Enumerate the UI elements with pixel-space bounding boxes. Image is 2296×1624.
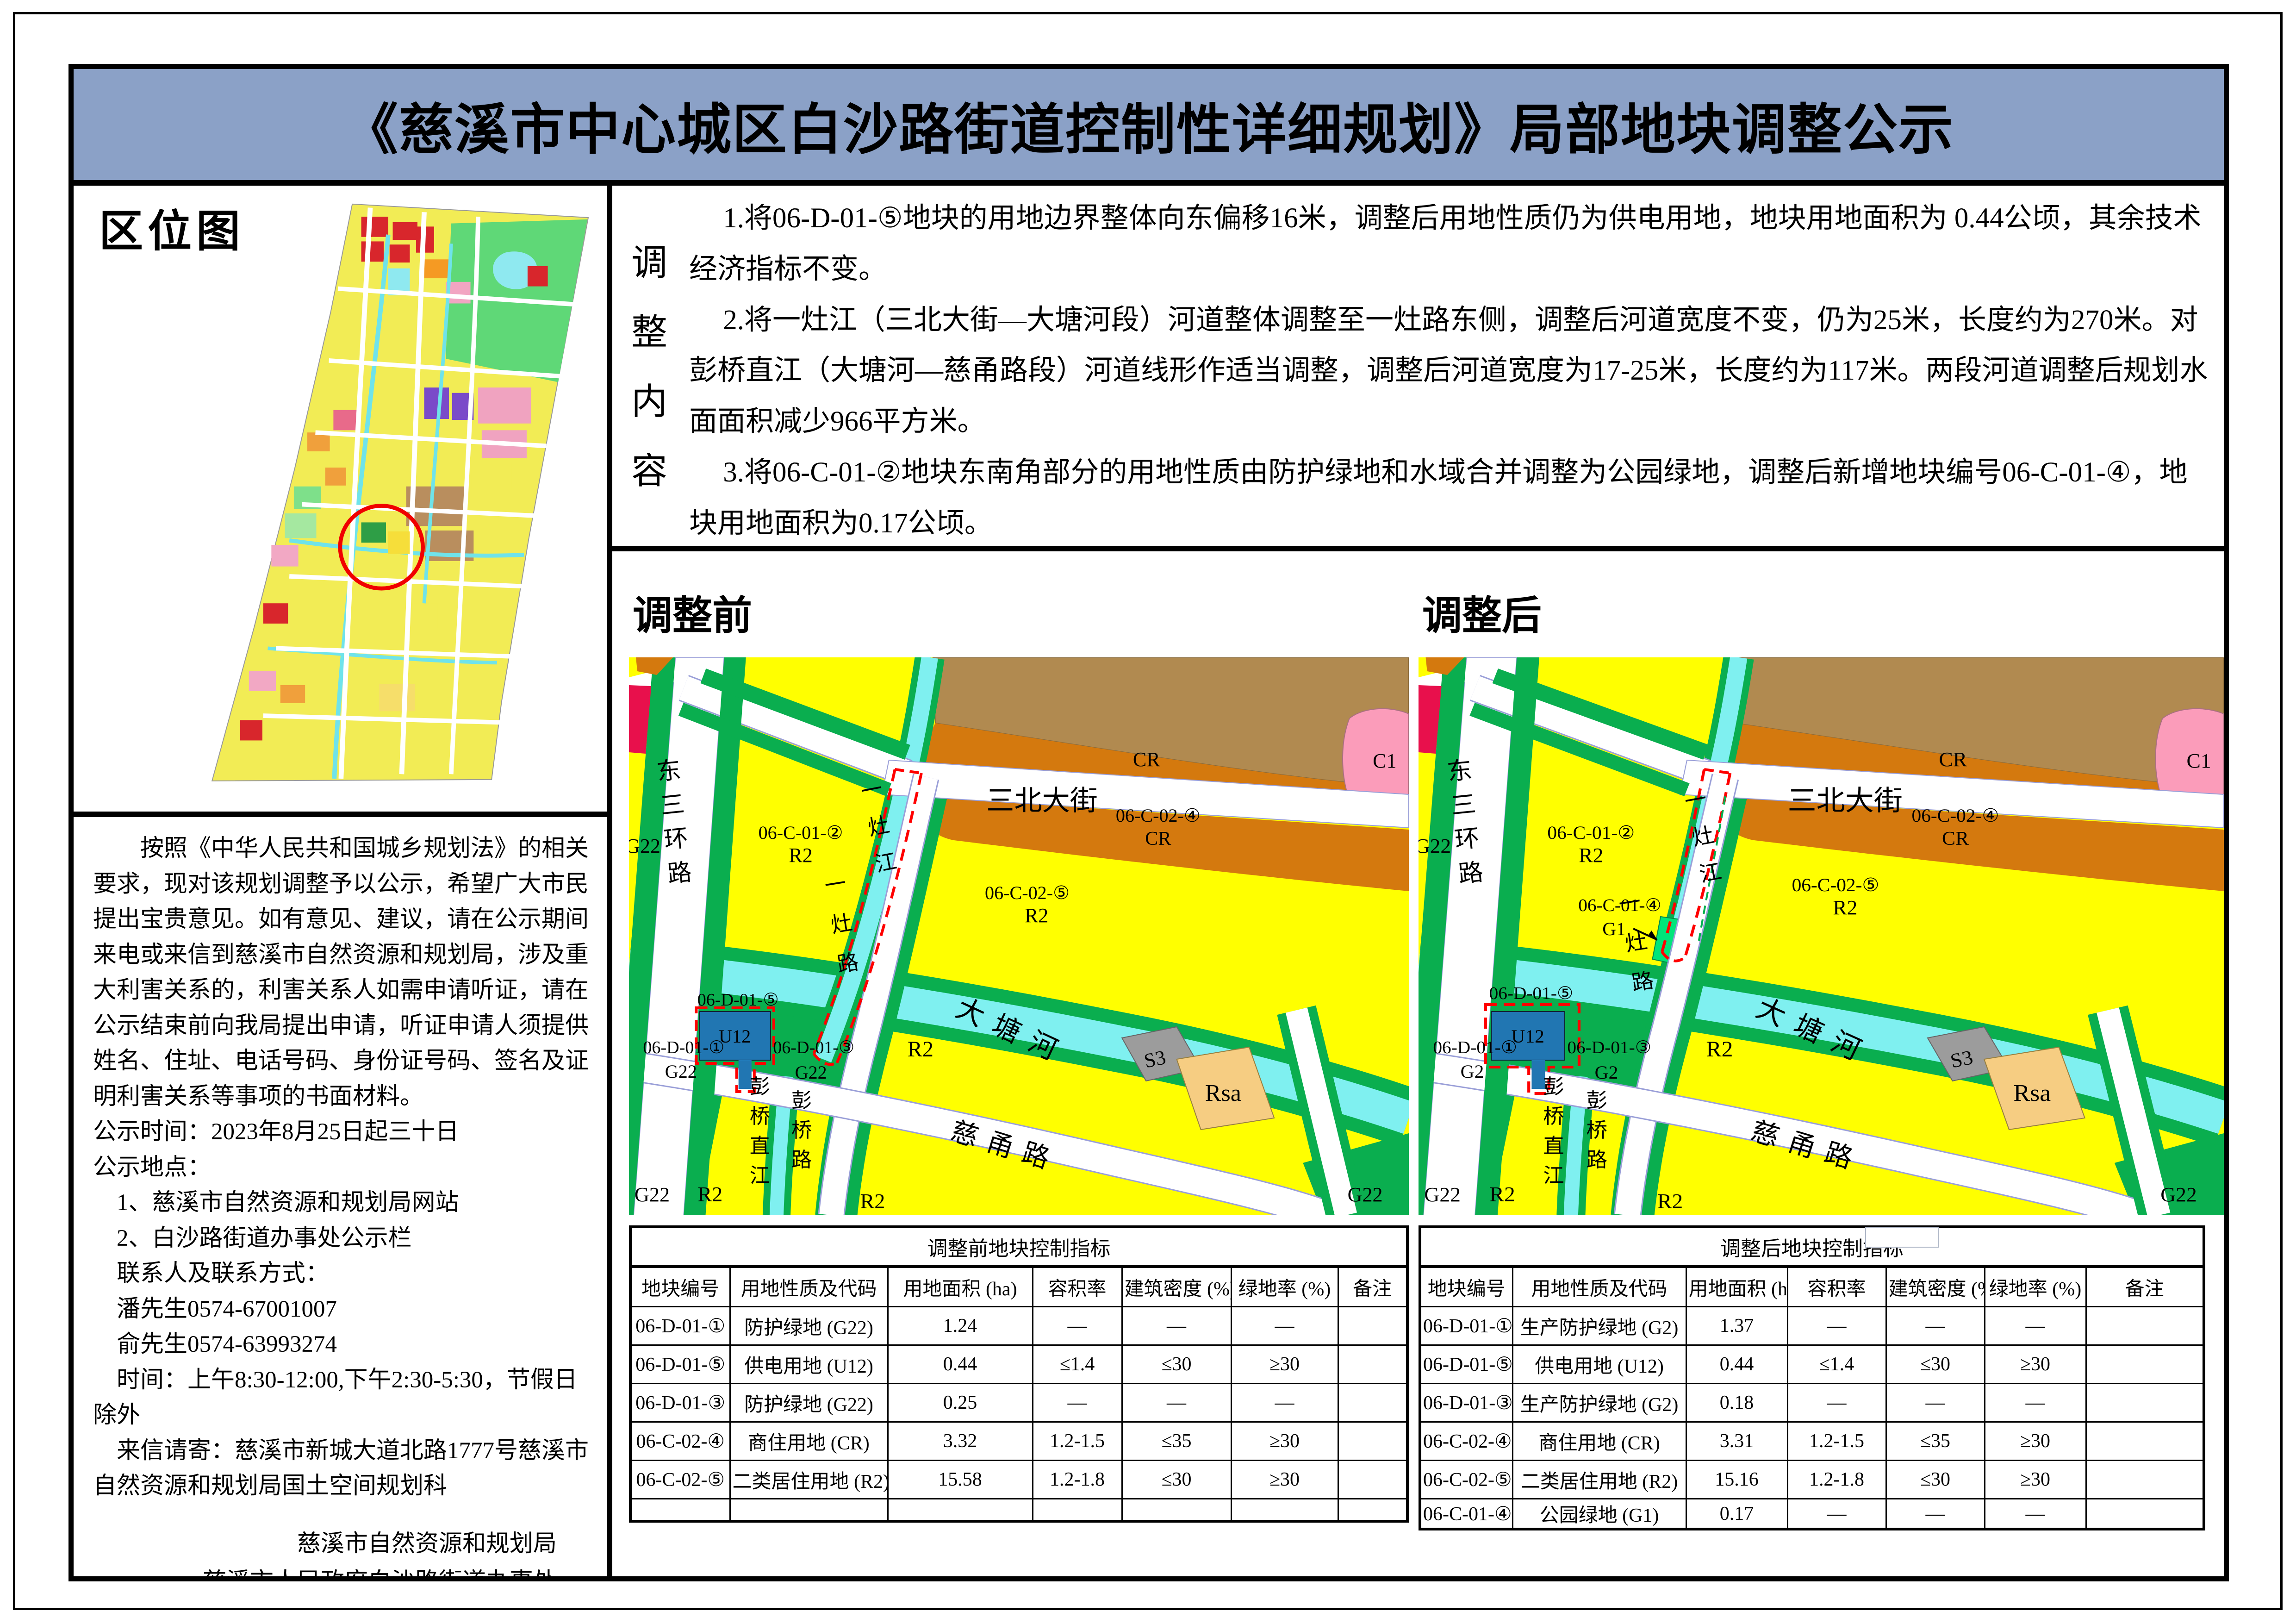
- zone-label-r2-bc: R2: [1657, 1190, 1683, 1213]
- table-cell: 二类居住用地 (R2): [730, 1461, 888, 1499]
- planning-notice-page: { "page_title": "《慈溪市中心城区白沙路街道控制性详细规划》局部…: [0, 0, 2296, 1624]
- street-label-pengqiaolu: 彭桥路: [791, 1089, 812, 1171]
- zone-label-c1: C1: [2187, 750, 2211, 772]
- table-cell: [1338, 1307, 1407, 1345]
- table-cell: 公园绿地 (G1): [1512, 1499, 1686, 1530]
- table-cell: [888, 1499, 1033, 1521]
- col-header: 用地性质及代码: [730, 1267, 888, 1307]
- zone-label-g22-west: G22: [1419, 835, 1451, 857]
- parcel-label-06d011: 06-D-01-①: [643, 1038, 724, 1057]
- adjustment-label-char: 容: [631, 453, 667, 489]
- zone-label-r2-c012: R2: [789, 844, 812, 867]
- zone-label-r2-bc: R2: [860, 1189, 885, 1213]
- after-map-title: 调整后: [1422, 583, 2224, 641]
- table-cell: [2086, 1384, 2204, 1422]
- parcel-label-06d015: 06-D-01-⑤: [697, 990, 779, 1010]
- notice-line: 潘先生0574-67001007: [93, 1292, 589, 1327]
- parcel-label-06d011: 06-D-01-①: [1433, 1038, 1517, 1057]
- zone-label-rsa: Rsa: [1205, 1080, 1241, 1106]
- table-cell: 3.32: [888, 1422, 1033, 1461]
- zone-label-g22-br: G22: [2160, 1183, 2196, 1206]
- table-cell: —: [1122, 1307, 1231, 1345]
- table-cell: —: [1787, 1307, 1886, 1345]
- location-map-panel: 区位图: [74, 186, 607, 817]
- table-cell: [1338, 1499, 1407, 1521]
- table-row: [630, 1499, 1407, 1521]
- notice-sheet: 《慈溪市中心城区白沙路街道控制性详细规划》局部地块调整公示 区位图: [68, 64, 2229, 1581]
- zone-label-cr-north: CR: [1133, 748, 1160, 771]
- zone-label-r2-c025: R2: [1025, 904, 1048, 927]
- notice-line: 1、慈溪市自然资源和规划局网站: [93, 1185, 589, 1221]
- table-cell: ≥30: [1985, 1461, 2086, 1499]
- zone-label-r2-bl: R2: [1489, 1183, 1515, 1206]
- right-column: 调整内容 1.将06-D-01-⑤地块的用地边界整体向东偏移16米，调整后用地性…: [612, 186, 2224, 1576]
- content-area: 区位图: [74, 186, 2224, 1576]
- col-header: 建筑密度 (%): [1122, 1267, 1231, 1307]
- table-cell: —: [1886, 1307, 1985, 1345]
- notice-line: 公示时间：2023年8月25日起三十日: [93, 1114, 589, 1150]
- zone-label-g22-west: G22: [629, 835, 660, 857]
- table-row: 06-C-02-⑤二类居住用地 (R2)15.581.2-1.8≤30≥30: [630, 1461, 1407, 1499]
- table-row: 06-D-01-③防护绿地 (G22)0.25———: [630, 1384, 1407, 1422]
- table-cell: 1.2-1.5: [1033, 1422, 1122, 1461]
- table-cell: —: [1985, 1384, 2086, 1422]
- maps-area: 调整前: [612, 551, 2224, 1576]
- table-cell: [2086, 1345, 2204, 1384]
- table-cell: [2086, 1422, 2204, 1461]
- notice-line: 来信请寄：慈溪市新城大道北路1777号慈溪市自然资源和规划局国土空间规划科: [93, 1433, 589, 1504]
- table-cell: ≤35: [1886, 1422, 1985, 1461]
- table-cell: 0.18: [1686, 1384, 1787, 1422]
- table-cell: ≥30: [1985, 1345, 2086, 1384]
- table-row: 06-D-01-③生产防护绿地 (G2)0.18———: [1420, 1384, 2204, 1422]
- zone-label-cr-south: CR: [1942, 828, 1969, 849]
- table-row: 06-D-01-①防护绿地 (G22)1.24———: [630, 1307, 1407, 1345]
- table-cell: ≥30: [1231, 1345, 1338, 1384]
- title-bar: 《慈溪市中心城区白沙路街道控制性详细规划》局部地块调整公示: [74, 69, 2224, 186]
- selection-artifact: [1865, 1227, 1939, 1248]
- table-cell: 供电用地 (U12): [730, 1345, 888, 1384]
- table-row: 06-D-01-⑤供电用地 (U12)0.44≤1.4≤30≥30: [1420, 1345, 2204, 1384]
- adjustment-label-char: 整: [631, 314, 667, 350]
- table-cell: 06-C-02-⑤: [630, 1461, 730, 1499]
- table-cell: ≤35: [1122, 1422, 1231, 1461]
- col-header: 用地性质及代码: [1512, 1267, 1686, 1307]
- zone-label-g22-bl: G22: [1424, 1183, 1460, 1206]
- before-map-column: 调整前: [629, 551, 1409, 1523]
- table-cell: 防护绿地 (G22): [730, 1307, 888, 1345]
- parcel-label-06d013: 06-D-01-③: [1567, 1038, 1651, 1057]
- table-cell: —: [1985, 1307, 2086, 1345]
- table-cell: [1033, 1499, 1122, 1521]
- zone-label-g22-br: G22: [1348, 1183, 1383, 1206]
- parcel-label-06c024: 06-C-02-④: [1116, 805, 1201, 826]
- left-column: 区位图: [74, 186, 612, 1576]
- street-label-pengqiaolu: 彭桥路: [1587, 1089, 1608, 1171]
- after-table-wrap: 调整后地块控制指标 地块编号 用地性质及代码 用地面积 (ha) 容积率 建筑密…: [1419, 1225, 2224, 1530]
- table-cell: [1338, 1345, 1407, 1384]
- table-cell: ≥30: [1231, 1461, 1338, 1499]
- table-cell: [1122, 1499, 1231, 1521]
- before-map-title: 调整前: [633, 583, 1409, 641]
- col-header: 地块编号: [1420, 1267, 1512, 1307]
- zone-label-r2-mid: R2: [1706, 1037, 1733, 1062]
- table-cell: 1.2-1.8: [1033, 1461, 1122, 1499]
- table-cell: 06-D-01-①: [1420, 1307, 1512, 1345]
- col-header: 用地面积 (ha): [888, 1267, 1033, 1307]
- table-cell: 1.2-1.8: [1787, 1461, 1886, 1499]
- table-cell: 生产防护绿地 (G2): [1512, 1384, 1686, 1422]
- table-cell: 0.17: [1686, 1499, 1787, 1530]
- table-cell: [1338, 1461, 1407, 1499]
- parcel-label-06c025: 06-C-02-⑤: [985, 882, 1070, 903]
- notice-line: 联系人及联系方式：: [93, 1256, 589, 1292]
- table-cell: [2086, 1499, 2204, 1530]
- parcel-label-06d013: 06-D-01-③: [773, 1038, 854, 1057]
- table-cell: —: [1231, 1307, 1338, 1345]
- after-table-title: 调整后地块控制指标: [1420, 1227, 2204, 1267]
- before-table-wrap: 调整前地块控制指标 地块编号 用地性质及代码 用地面积 (ha) 容积率 建筑密…: [629, 1225, 1409, 1523]
- zone-label-d3-code: G22: [795, 1062, 827, 1083]
- table-cell: 06-D-01-⑤: [630, 1345, 730, 1384]
- after-map-column: 调整后: [1419, 551, 2224, 1530]
- table-cell: [2086, 1461, 2204, 1499]
- table-row: 06-C-02-④商住用地 (CR)3.321.2-1.5≤35≥30: [630, 1422, 1407, 1461]
- zone-label-c1: C1: [1373, 750, 1396, 772]
- street-label-sanbei: 三北大街: [1788, 786, 1903, 817]
- table-cell: ≥30: [1231, 1422, 1338, 1461]
- zone-label-d1-code: G2: [1461, 1062, 1484, 1082]
- table-cell: 0.44: [1686, 1345, 1787, 1384]
- zone-label-d3-code: G2: [1595, 1062, 1618, 1083]
- table-cell: 生产防护绿地 (G2): [1512, 1307, 1686, 1345]
- table-cell: 供电用地 (U12): [1512, 1345, 1686, 1384]
- table-cell: —: [1122, 1384, 1231, 1422]
- parcel-label-06c025: 06-C-02-⑤: [1792, 875, 1879, 895]
- table-cell: 06-C-01-④: [1420, 1499, 1512, 1530]
- parcel-label-06c012: 06-C-01-②: [759, 822, 843, 843]
- table-cell: 06-C-02-④: [1420, 1422, 1512, 1461]
- table-cell: 商住用地 (CR): [1512, 1422, 1686, 1461]
- table-cell: 06-D-01-⑤: [1420, 1345, 1512, 1384]
- table-cell: —: [1886, 1499, 1985, 1530]
- table-cell: [630, 1499, 730, 1521]
- parcel-label-06c024: 06-C-02-④: [1911, 806, 1999, 826]
- table-cell: [2086, 1307, 2204, 1345]
- table-cell: 1.37: [1686, 1307, 1787, 1345]
- table-row: 06-C-02-④商住用地 (CR)3.311.2-1.5≤35≥30: [1420, 1422, 2204, 1461]
- zone-label-r2-mid: R2: [908, 1037, 933, 1062]
- parcel-label-06c014: 06-C-01-④: [1578, 896, 1661, 915]
- table-cell: 15.16: [1686, 1461, 1787, 1499]
- zone-label-g1: G1: [1602, 919, 1626, 939]
- notice-paragraph: 按照《中华人民共和国城乡规划法》的相关要求，现对该规划调整予以公示，希望广大市民…: [93, 831, 589, 1114]
- notice-lines: 公示时间：2023年8月25日起三十日公示地点： 1、慈溪市自然资源和规划局网站…: [93, 1114, 589, 1504]
- table-cell: —: [1985, 1499, 2086, 1530]
- table-cell: 1.24: [888, 1307, 1033, 1345]
- col-header: 绿地率 (%): [1231, 1267, 1338, 1307]
- table-cell: —: [1787, 1384, 1886, 1422]
- zone-label-s3: S3: [1142, 1046, 1168, 1073]
- table-cell: —: [1231, 1384, 1338, 1422]
- page-title: 《慈溪市中心城区白沙路街道控制性详细规划》局部地块调整公示: [343, 85, 1954, 164]
- table-cell: —: [1033, 1384, 1122, 1422]
- before-spec-table: 调整前地块控制指标 地块编号 用地性质及代码 用地面积 (ha) 容积率 建筑密…: [629, 1225, 1409, 1523]
- zone-label-cr-north: CR: [1939, 748, 1967, 771]
- notice-line: 俞先生0574-63993274: [93, 1327, 589, 1362]
- parcel-label-06c012: 06-C-01-②: [1547, 823, 1635, 843]
- table-row: 06-C-02-⑤二类居住用地 (R2)15.161.2-1.8≤30≥30: [1420, 1461, 2204, 1499]
- table-cell: 06-D-01-③: [1420, 1384, 1512, 1422]
- zone-label-g22-bl: G22: [635, 1183, 670, 1206]
- table-cell: 防护绿地 (G22): [730, 1384, 888, 1422]
- zone-label-r2-c025: R2: [1833, 896, 1857, 919]
- notice-line: 2、白沙路街道办事处公示栏: [93, 1221, 589, 1256]
- street-label-sanbei: 三北大街: [986, 785, 1098, 816]
- table-cell: 0.44: [888, 1345, 1033, 1384]
- table-row: 06-C-01-④公园绿地 (G1)0.17———: [1420, 1499, 2204, 1530]
- table-cell: [1338, 1422, 1407, 1461]
- table-cell: 06-C-02-⑤: [1420, 1461, 1512, 1499]
- table-cell: [1338, 1384, 1407, 1422]
- table-cell: [1231, 1499, 1338, 1521]
- adjustment-label-char: 内: [631, 384, 667, 420]
- table-cell: —: [1787, 1499, 1886, 1530]
- after-zoning-map: 东三环路 G22 06-C-01-② R2 一灶江 一灶路 三北大街: [1419, 657, 2224, 1215]
- adjustment-label-char: 调: [631, 245, 667, 281]
- col-header: 备注: [1338, 1267, 1407, 1307]
- table-cell: 15.58: [888, 1461, 1033, 1499]
- table-cell: 商住用地 (CR): [730, 1422, 888, 1461]
- table-cell: 06-D-01-③: [630, 1384, 730, 1422]
- table-row: 06-D-01-⑤供电用地 (U12)0.44≤1.4≤30≥30: [630, 1345, 1407, 1384]
- table-cell: [730, 1499, 888, 1521]
- after-spec-table: 调整后地块控制指标 地块编号 用地性质及代码 用地面积 (ha) 容积率 建筑密…: [1419, 1225, 2205, 1530]
- table-cell: ≤30: [1886, 1345, 1985, 1384]
- table-cell: 二类居住用地 (R2): [1512, 1461, 1686, 1499]
- table-cell: —: [1886, 1384, 1985, 1422]
- table-cell: ≤1.4: [1787, 1345, 1886, 1384]
- zone-label-r2-bl: R2: [697, 1182, 722, 1206]
- col-header: 地块编号: [630, 1267, 730, 1307]
- zone-label-d1-code: G22: [665, 1061, 697, 1082]
- signature-line: 慈溪市自然资源和规划局: [93, 1525, 589, 1563]
- adjustment-text: 1.将06-D-01-⑤地块的用地边界整体向东偏移16米，调整后用地性质仍为供电…: [686, 186, 2224, 546]
- notice-line: 时间：上午8:30-12:00,下午2:30-5:30，节假日除外: [93, 1362, 589, 1433]
- signature-line: 慈溪市人民政府白沙路街道办事处: [93, 1563, 589, 1576]
- parcel-label-06d015: 06-D-01-⑤: [1489, 984, 1574, 1003]
- col-header: 容积率: [1033, 1267, 1122, 1307]
- col-header: 容积率: [1787, 1267, 1886, 1307]
- signature-block: 慈溪市自然资源和规划局慈溪市人民政府白沙路街道办事处二〇二三年八月二十五日: [93, 1525, 589, 1577]
- zone-label-cr-south: CR: [1145, 828, 1171, 849]
- table-cell: ≤1.4: [1033, 1345, 1122, 1384]
- table-row: 06-D-01-①生产防护绿地 (G2)1.37———: [1420, 1307, 2204, 1345]
- col-header: 建筑密度 (%): [1886, 1267, 1985, 1307]
- adjustment-paragraph-2: 2.将一灶江（三北大街—大塘河段）河道整体调整至一灶路东侧，调整后河道宽度不变，…: [689, 295, 2212, 447]
- location-map-image: [137, 187, 604, 808]
- table-cell: —: [1033, 1307, 1122, 1345]
- adjustment-paragraph-3: 3.将06-C-01-②地块东南角部分的用地性质由防护绿地和水域合并调整为公园绿…: [689, 447, 2212, 546]
- table-cell: 06-D-01-①: [630, 1307, 730, 1345]
- table-cell: ≤30: [1122, 1345, 1231, 1384]
- public-notice-panel: 按照《中华人民共和国城乡规划法》的相关要求，现对该规划调整予以公示，希望广大市民…: [74, 817, 607, 1576]
- adjustment-vertical-label: 调整内容: [612, 186, 686, 546]
- adjustment-content-panel: 调整内容 1.将06-D-01-⑤地块的用地边界整体向东偏移16米，调整后用地性…: [612, 186, 2224, 551]
- table-cell: ≤30: [1122, 1461, 1231, 1499]
- table-cell: ≤30: [1886, 1461, 1985, 1499]
- col-header: 绿地率 (%): [1985, 1267, 2086, 1307]
- table-cell: ≥30: [1985, 1422, 2086, 1461]
- table-cell: 3.31: [1686, 1422, 1787, 1461]
- col-header: 备注: [2086, 1267, 2204, 1307]
- adjustment-paragraph-1: 1.将06-D-01-⑤地块的用地边界整体向东偏移16米，调整后用地性质仍为供电…: [689, 193, 2212, 295]
- table-cell: 06-C-02-④: [630, 1422, 730, 1461]
- zone-label-rsa: Rsa: [2013, 1080, 2051, 1106]
- table-cell: 0.25: [888, 1384, 1033, 1422]
- before-zoning-map: 东三环路 G22 06-C-01-② R2 一灶江 一灶路 三北大街: [629, 657, 1409, 1215]
- before-table-title: 调整前地块控制指标: [630, 1227, 1407, 1267]
- col-header: 用地面积 (ha): [1686, 1267, 1787, 1307]
- table-cell: 1.2-1.5: [1787, 1422, 1886, 1461]
- zone-label-r2-c012: R2: [1579, 844, 1603, 867]
- notice-line: 公示地点：: [93, 1150, 589, 1186]
